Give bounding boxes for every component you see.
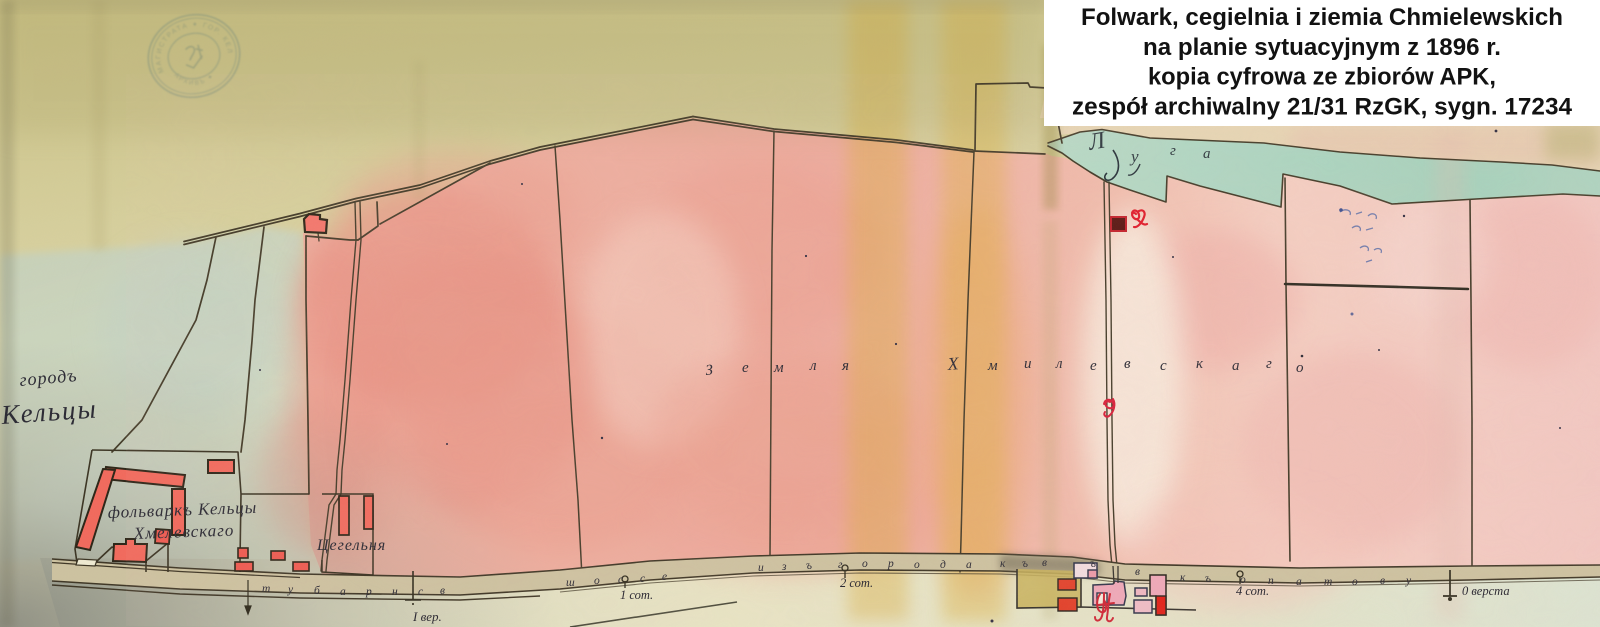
svg-text:na planie sytuacyjnym z 1896 r: na planie sytuacyjnym z 1896 r. <box>1143 34 1501 61</box>
svg-text:zespół archiwalny 21/31 RzGK,: zespół archiwalny 21/31 RzGK, sygn. 1723… <box>1072 94 1572 121</box>
svg-text:kopia cyfrowa ze zbiorów APK,: kopia cyfrowa ze zbiorów APK, <box>1148 64 1496 91</box>
svg-text:Folwark, cegielnia i ziemia Ch: Folwark, cegielnia i ziemia Chmielewskic… <box>1081 4 1563 31</box>
